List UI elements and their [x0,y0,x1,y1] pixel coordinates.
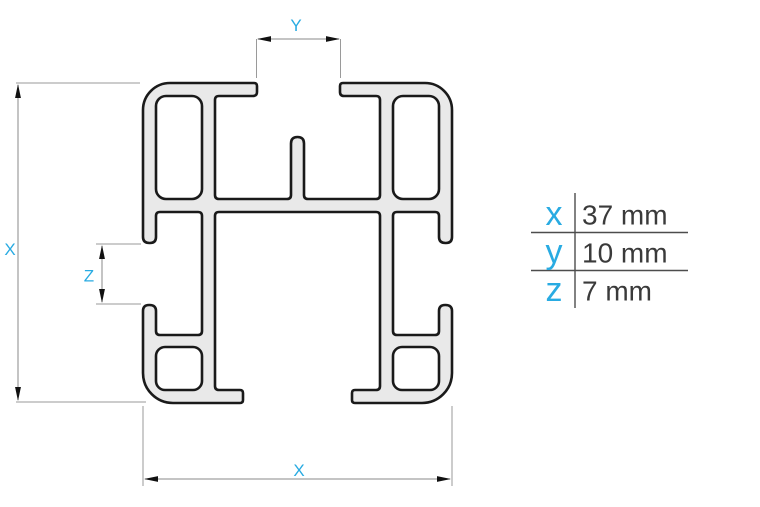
dimension-x-bottom: X [143,406,452,486]
dimension-z-side: Z [84,244,141,304]
upper-right-chamber-hole [393,96,439,199]
legend-label-x: x [546,195,563,233]
legend-row-z: z 7 mm [546,271,653,309]
dimension-x-vertical: X [4,83,146,402]
dimension-label-x-bottom: X [293,461,304,480]
dimension-label-y: Y [290,16,301,35]
dimension-label-x-vertical: X [4,240,15,259]
legend-value-z: 7 mm [582,276,652,307]
upper-left-chamber-hole [156,96,202,199]
legend-row-x: x 37 mm [546,195,668,233]
lower-left-foot-hole [156,347,202,390]
legend-table: x 37 mm y 10 mm z 7 mm [531,193,688,309]
legend-label-z: z [546,271,563,309]
legend-label-y: y [546,233,563,271]
lower-right-foot-hole [393,347,439,390]
dimension-y-top: Y [257,16,341,78]
legend-value-y: 10 mm [582,238,668,269]
dimension-label-z: Z [84,267,94,286]
roof-bar-profile-diagram: X Y Z X x [0,0,760,507]
legend-value-x: 37 mm [582,200,668,231]
technical-diagram-svg: X Y Z X x [0,0,760,507]
legend-row-y: y 10 mm [546,233,668,271]
profile-cross-section [143,83,452,403]
